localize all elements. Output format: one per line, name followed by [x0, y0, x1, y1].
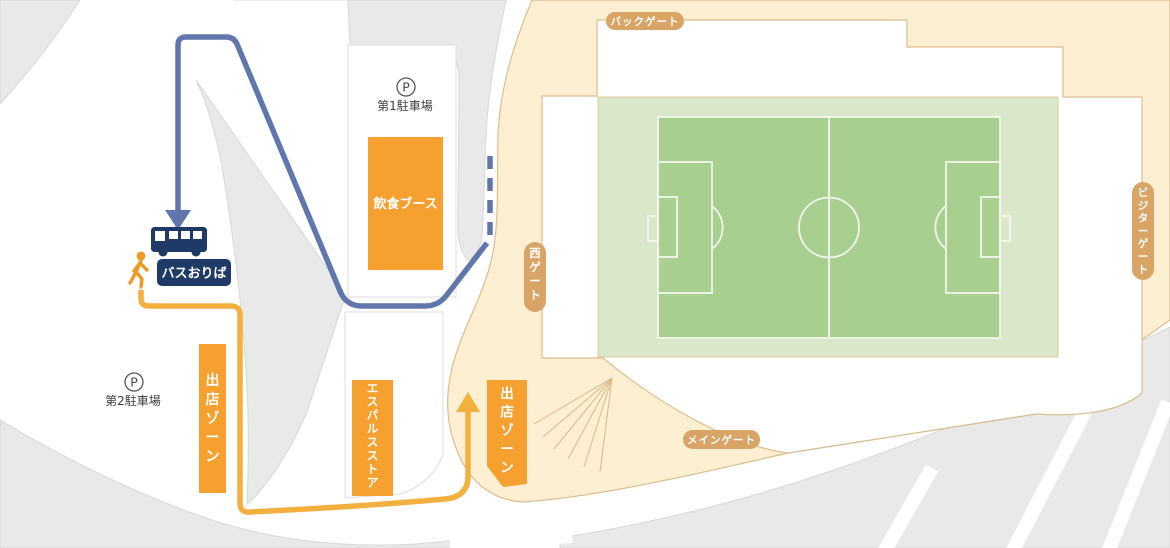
vendor-zone-main-label: 出店ゾーン	[500, 385, 514, 476]
spulse-store-label: エスパルスストア	[367, 381, 379, 490]
food-booth-label: 飲食ブース	[372, 196, 437, 212]
back-gate-label: バックゲート	[611, 15, 680, 28]
road-bottom-gap	[450, 536, 572, 545]
venue-map: バックゲート 西ゲート ビジターゲート メインゲート 飲食ブース 出店ゾーン 出…	[0, 0, 1170, 548]
bus-stop-label: バスおりば	[161, 267, 226, 282]
parking1-icon-letter: P	[402, 80, 410, 95]
parking2-icon-letter: P	[130, 375, 138, 390]
visitor-gate-label: ビジターゲート	[1138, 186, 1149, 276]
vendor-zone-west-label: 出店ゾーン	[206, 372, 220, 465]
west-gate-label: 西ゲート	[529, 246, 541, 302]
parking2-label: 第2駐車場	[105, 393, 161, 408]
main-gate-label: メインゲート	[687, 434, 756, 447]
soccer-pitch	[648, 117, 1010, 338]
parking1-label: 第1駐車場	[377, 98, 433, 113]
